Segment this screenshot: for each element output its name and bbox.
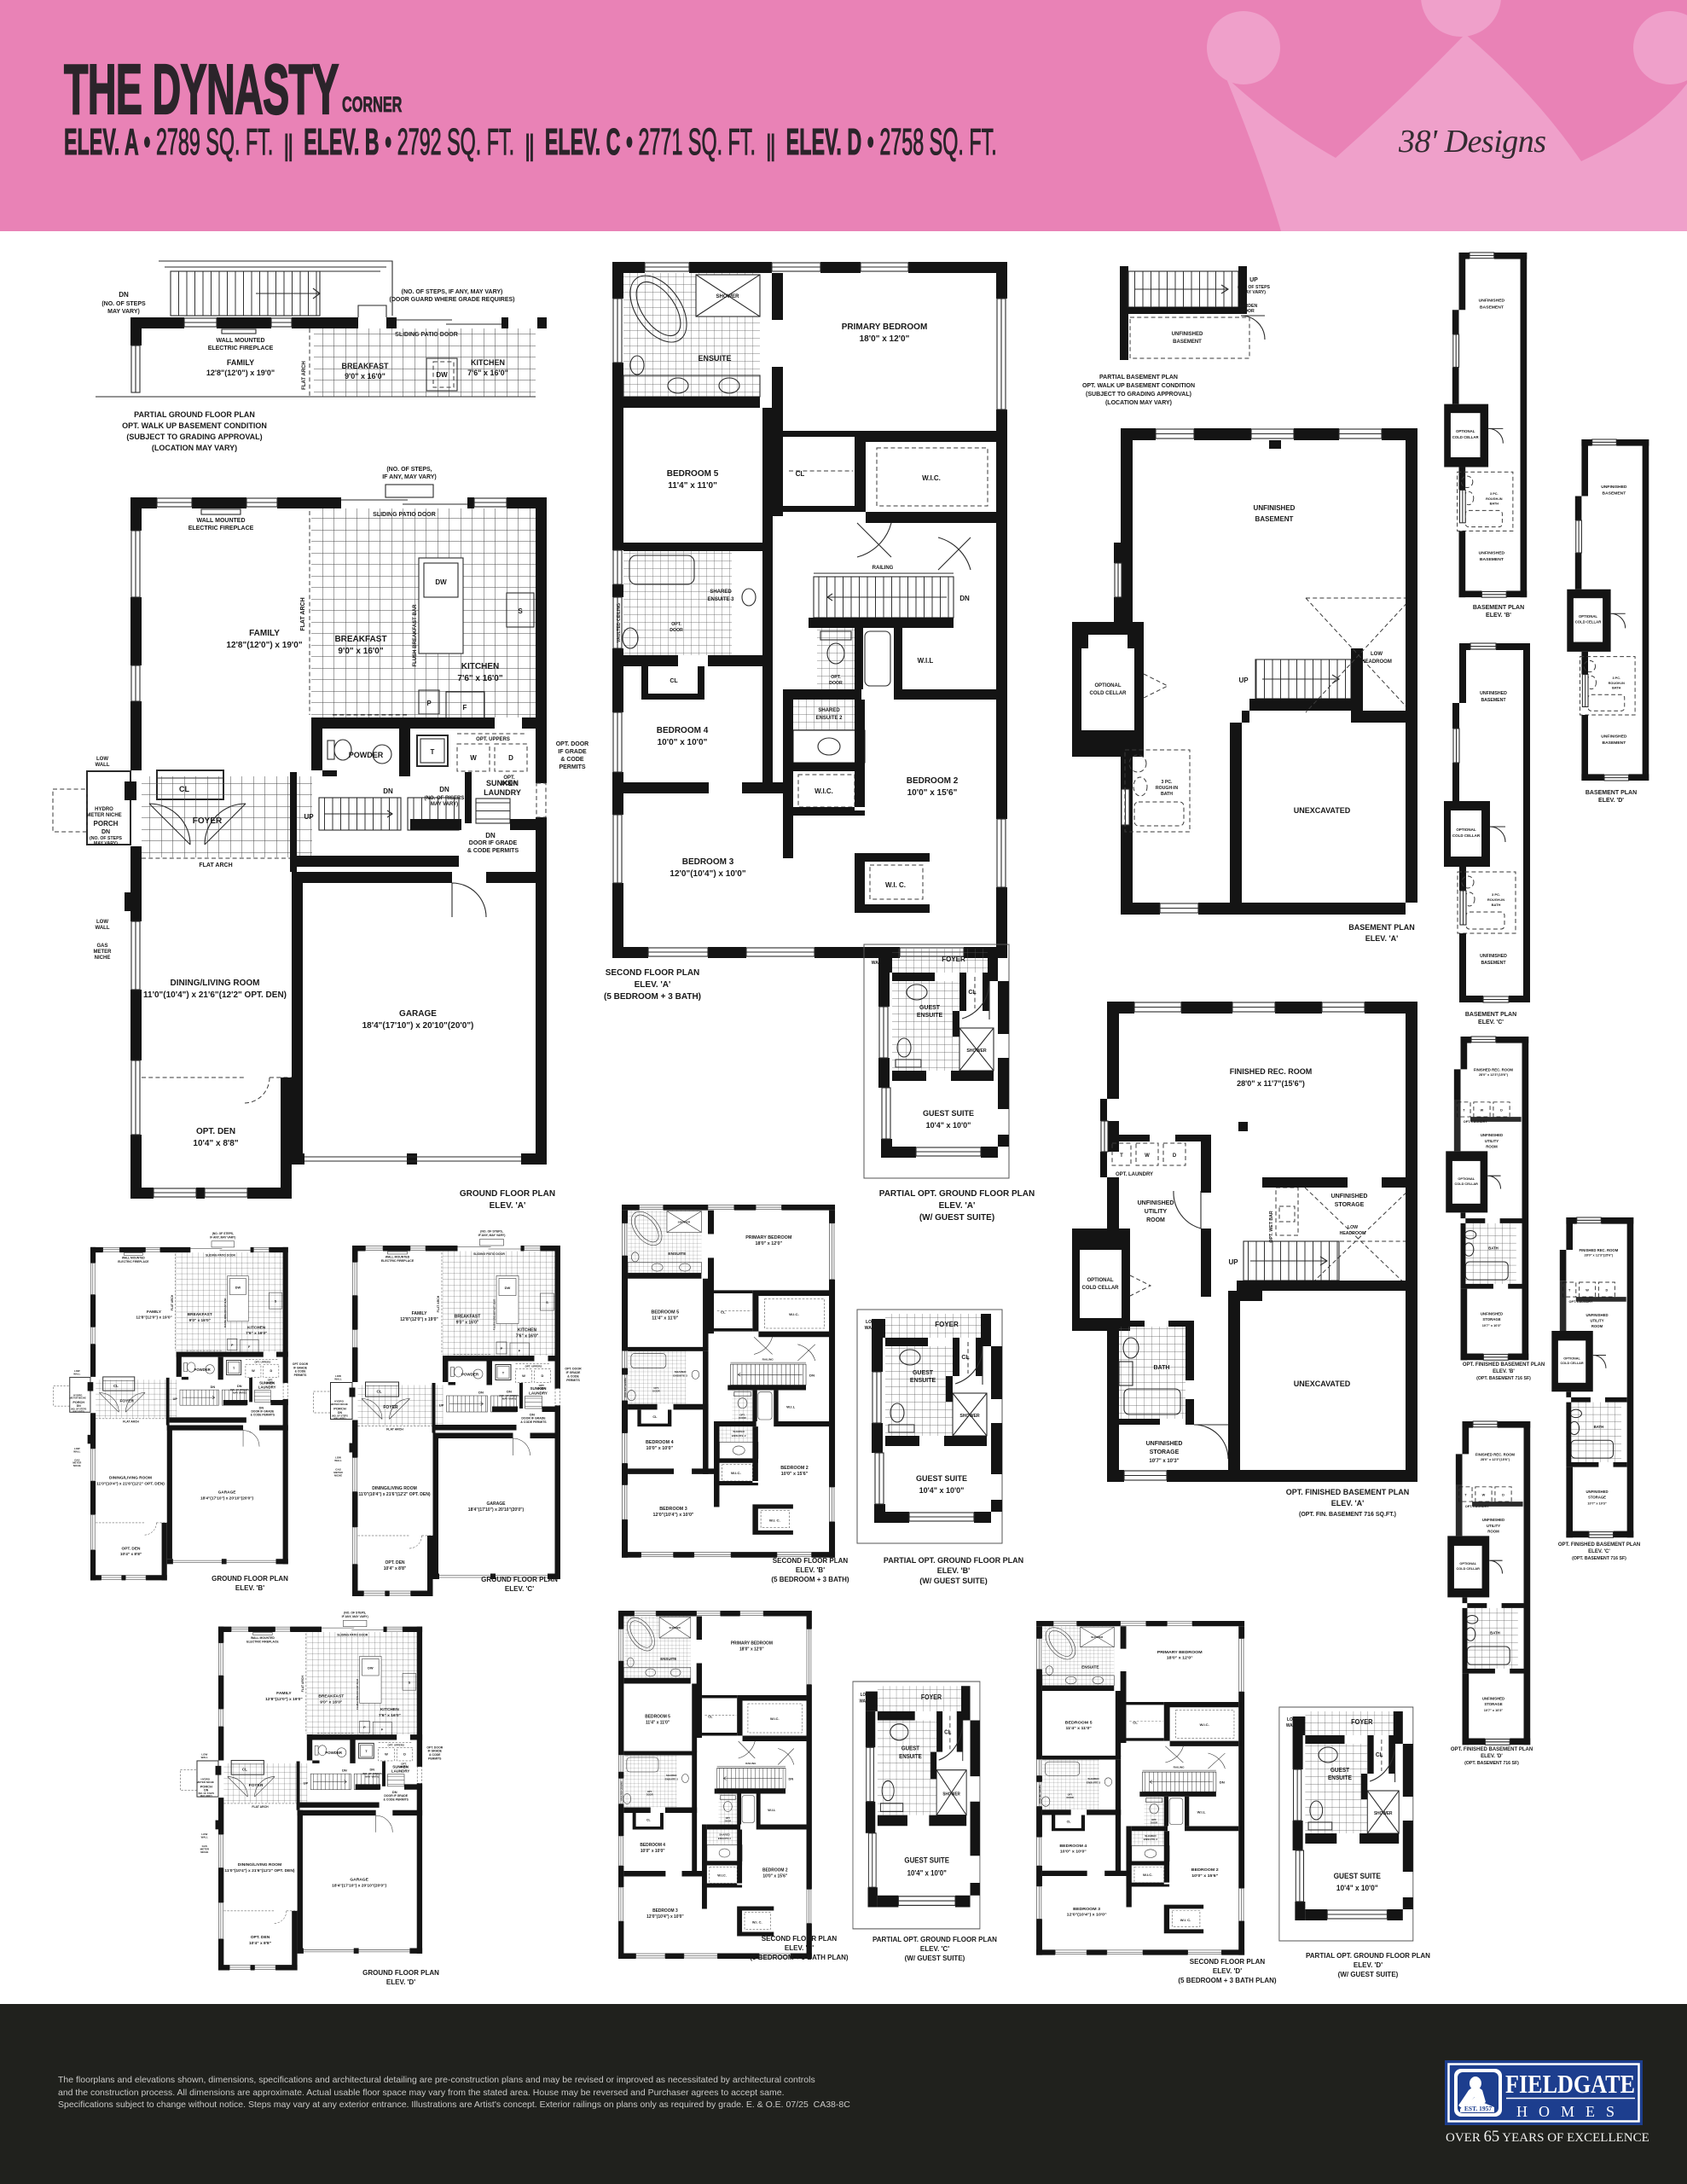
- svg-text:(OPT. BASEMENT 716 SF): (OPT. BASEMENT 716 SF): [1572, 1556, 1626, 1561]
- svg-text:BASEMENT PLAN: BASEMENT PLAN: [1465, 1012, 1516, 1018]
- svg-text:PARTIAL BASEMENT PLAN: PARTIAL BASEMENT PLAN: [1099, 375, 1178, 380]
- svg-text:SECOND FLOOR PLAN: SECOND FLOOR PLAN: [773, 1557, 849, 1565]
- svg-text:ELEV. 'A': ELEV. 'A': [490, 1201, 526, 1211]
- svg-text:PARTIAL OPT. GROUND FLOOR PLAN: PARTIAL OPT. GROUND FLOOR PLAN: [872, 1936, 997, 1943]
- svg-text:ELEV. 'D': ELEV. 'D': [1213, 1967, 1242, 1975]
- svg-text:(W/ GUEST SUITE): (W/ GUEST SUITE): [905, 1955, 965, 1962]
- svg-text:COLD CELLAR: COLD CELLAR: [1090, 691, 1128, 696]
- svg-text:WALL MOUNTED: WALL MOUNTED: [216, 338, 264, 344]
- svg-text:ELEV. 'D': ELEV. 'D': [1598, 798, 1624, 804]
- svg-text:ELEV. 'C': ELEV. 'C': [785, 1944, 814, 1952]
- svg-text:HOMES: HOMES: [1516, 2103, 1626, 2120]
- svg-text:(NO. OF STEPS, IF ANY, MAY VAR: (NO. OF STEPS, IF ANY, MAY VARY): [402, 289, 503, 295]
- svg-text:W: W: [1145, 1153, 1150, 1159]
- svg-text:(5 BEDROOM + 3 BATH): (5 BEDROOM + 3 BATH): [604, 992, 701, 1002]
- svg-text:LOW: LOW: [1371, 652, 1383, 657]
- svg-text:ELEV. 'B': ELEV. 'B': [235, 1584, 264, 1592]
- svg-text:(NO. OF STEPS: (NO. OF STEPS: [101, 301, 146, 307]
- svg-text:ELEV. 'B': ELEV. 'B': [1493, 1369, 1515, 1374]
- svg-text:ELEV. 'C': ELEV. 'C': [1588, 1549, 1610, 1554]
- svg-text:(SUBJECT TO GRADING APPROVAL): (SUBJECT TO GRADING APPROVAL): [126, 433, 262, 441]
- svg-text:COLD CELLAR: COLD CELLAR: [1082, 1286, 1120, 1291]
- svg-text:(OPT. BASEMENT 716 SF): (OPT. BASEMENT 716 SF): [1464, 1761, 1519, 1766]
- svg-text:(LOCATION MAY VARY): (LOCATION MAY VARY): [1105, 400, 1172, 406]
- svg-text:SECOND FLOOR PLAN: SECOND FLOOR PLAN: [1190, 1958, 1266, 1966]
- svg-text:ELEV. 'B': ELEV. 'B': [1486, 613, 1511, 619]
- svg-text:EST. 1957: EST. 1957: [1464, 2105, 1493, 2112]
- svg-text:(W/ GUEST SUITE): (W/ GUEST SUITE): [919, 1213, 994, 1223]
- svg-text:UNFINISHED: UNFINISHED: [1331, 1194, 1368, 1199]
- svg-text:7'6" x 16'0": 7'6" x 16'0": [467, 369, 508, 377]
- svg-text:UNFINISHED: UNFINISHED: [1138, 1200, 1174, 1206]
- svg-text:FLAT ARCH: FLAT ARCH: [302, 361, 307, 390]
- svg-text:BATH: BATH: [1161, 792, 1173, 797]
- svg-text:ELEV. 'B': ELEV. 'B': [796, 1566, 825, 1574]
- svg-text:(5 BEDROOM + 3 BATH PLAN): (5 BEDROOM + 3 BATH PLAN): [1178, 1977, 1277, 1984]
- svg-text:PARTIAL GROUND FLOOR PLAN: PARTIAL GROUND FLOOR PLAN: [134, 410, 255, 419]
- svg-text:OPT. FINISHED BASEMENT PLAN: OPT. FINISHED BASEMENT PLAN: [1286, 1488, 1410, 1496]
- svg-text:(5 BEDROOM + 3 BATH PLAN): (5 BEDROOM + 3 BATH PLAN): [750, 1954, 849, 1961]
- svg-text:BASEMENT PLAN: BASEMENT PLAN: [1586, 790, 1637, 796]
- svg-text:ELEV. 'B': ELEV. 'B': [937, 1566, 970, 1575]
- svg-text:DOOR: DOOR: [1241, 309, 1255, 314]
- svg-text:ELEV. 'A': ELEV. 'A': [1331, 1499, 1364, 1507]
- svg-text:UP: UP: [1249, 277, 1258, 283]
- svg-text:LOW: LOW: [1348, 1225, 1358, 1230]
- svg-text:MAY VARY): MAY VARY): [107, 309, 140, 315]
- svg-text:STORAGE: STORAGE: [1335, 1202, 1365, 1208]
- svg-text:(OPT. FIN. BASEMENT 716 SQ.FT.: (OPT. FIN. BASEMENT 716 SQ.FT.): [1299, 1512, 1396, 1518]
- svg-text:FINISHED REC. ROOM: FINISHED REC. ROOM: [1230, 1067, 1313, 1076]
- svg-text:(5 BEDROOM + 3 BATH): (5 BEDROOM + 3 BATH): [771, 1576, 849, 1583]
- svg-text:(W/ GUEST SUITE): (W/ GUEST SUITE): [919, 1577, 988, 1585]
- svg-text:DN: DN: [119, 291, 129, 299]
- svg-text:PARTIAL OPT. GROUND FLOOR PLAN: PARTIAL OPT. GROUND FLOOR PLAN: [884, 1556, 1023, 1565]
- svg-text:T: T: [1120, 1153, 1123, 1159]
- svg-text:PARTIAL OPT. GROUND FLOOR PLAN: PARTIAL OPT. GROUND FLOOR PLAN: [1306, 1952, 1430, 1960]
- svg-text:ELEV. 'D': ELEV. 'D': [1481, 1754, 1503, 1759]
- svg-text:UNFINISHED: UNFINISHED: [1254, 504, 1296, 512]
- svg-text:ELEV. 'A': ELEV. 'A': [1365, 934, 1398, 943]
- svg-text:PARTIAL OPT. GROUND FLOOR PLAN: PARTIAL OPT. GROUND FLOOR PLAN: [879, 1189, 1035, 1199]
- svg-text:(SUBJECT TO GRADING APPROVAL): (SUBJECT TO GRADING APPROVAL): [1086, 392, 1191, 398]
- svg-text:(LOCATION MAY VARY): (LOCATION MAY VARY): [152, 444, 237, 452]
- svg-text:ELEV. 'C': ELEV. 'C': [505, 1585, 534, 1593]
- svg-text:UNFINISHED: UNFINISHED: [1172, 332, 1203, 337]
- svg-text:BASEMENT PLAN: BASEMENT PLAN: [1348, 923, 1415, 932]
- svg-text:OPT. WALK UP BASEMENT CONDITIO: OPT. WALK UP BASEMENT CONDITION: [122, 421, 267, 430]
- svg-text:OPTIONAL: OPTIONAL: [1087, 1278, 1114, 1283]
- svg-text:GROUND FLOOR PLAN: GROUND FLOOR PLAN: [212, 1575, 288, 1583]
- svg-text:KITCHEN: KITCHEN: [471, 358, 505, 367]
- svg-text:DW: DW: [436, 371, 448, 379]
- svg-text:FIELDGATE: FIELDGATE: [1505, 2069, 1635, 2099]
- svg-text:HEADROOM: HEADROOM: [1361, 659, 1392, 665]
- svg-text:OPT. FINISHED BASEMENT PLAN: OPT. FINISHED BASEMENT PLAN: [1451, 1747, 1533, 1752]
- svg-text:ELECTRIC FIREPLACE: ELECTRIC FIREPLACE: [208, 346, 274, 351]
- svg-text:(DOOR GUARD WHERE GRADE REQUIR: (DOOR GUARD WHERE GRADE REQUIRES): [389, 297, 514, 303]
- svg-text:OPT. WALK UP BASEMENT CONDITIO: OPT. WALK UP BASEMENT CONDITION: [1082, 383, 1195, 389]
- svg-text:OPT. FINISHED BASEMENT PLAN: OPT. FINISHED BASEMENT PLAN: [1558, 1542, 1640, 1548]
- svg-text:ELEV. 'D': ELEV. 'D': [1354, 1961, 1383, 1969]
- svg-text:OPT. FINISHED BASEMENT PLAN: OPT. FINISHED BASEMENT PLAN: [1463, 1362, 1545, 1368]
- svg-text:ELEV. 'C': ELEV. 'C': [920, 1945, 949, 1953]
- svg-text:10'7" x 10'3": 10'7" x 10'3": [1149, 1459, 1179, 1464]
- svg-text:(OPT. BASEMENT 716 SF): (OPT. BASEMENT 716 SF): [1476, 1376, 1531, 1381]
- svg-text:FAMILY: FAMILY: [227, 358, 254, 367]
- svg-text:ROUGH-IN: ROUGH-IN: [1156, 786, 1178, 791]
- svg-text:9'0" x 16'0": 9'0" x 16'0": [345, 372, 386, 380]
- svg-text:ELEV. 'C': ELEV. 'C': [1478, 1019, 1504, 1025]
- svg-text:12'8"(12'0") x 19'0": 12'8"(12'0") x 19'0": [206, 369, 275, 377]
- svg-text:UNEXCAVATED: UNEXCAVATED: [1294, 806, 1351, 815]
- svg-text:GROUND FLOOR PLAN: GROUND FLOOR PLAN: [362, 1969, 439, 1977]
- svg-text:ELEV. 'A': ELEV. 'A': [635, 980, 671, 990]
- svg-text:OPT. WET BAR: OPT. WET BAR: [1269, 1211, 1274, 1242]
- svg-text:UP: UP: [1228, 1258, 1238, 1266]
- svg-text:OPT. LAUNDRY: OPT. LAUNDRY: [1116, 1172, 1153, 1177]
- svg-text:BASEMENT PLAN: BASEMENT PLAN: [1473, 605, 1524, 611]
- svg-text:GROUND FLOOR PLAN: GROUND FLOOR PLAN: [460, 1189, 555, 1199]
- svg-text:GROUND FLOOR PLAN: GROUND FLOOR PLAN: [481, 1576, 558, 1583]
- svg-text:(W/ GUEST SUITE): (W/ GUEST SUITE): [1338, 1971, 1399, 1978]
- svg-text:ELEV. 'A': ELEV. 'A': [939, 1201, 976, 1211]
- svg-text:ELEV. 'D': ELEV. 'D': [386, 1978, 415, 1986]
- svg-text:28'0" x 11'7"(15'6"): 28'0" x 11'7"(15'6"): [1237, 1079, 1305, 1088]
- svg-text:SECOND FLOOR PLAN: SECOND FLOOR PLAN: [606, 968, 700, 978]
- svg-text:OPTIONAL: OPTIONAL: [1095, 683, 1122, 688]
- svg-text:UNEXCAVATED: UNEXCAVATED: [1294, 1380, 1351, 1388]
- svg-text:STORAGE: STORAGE: [1150, 1449, 1180, 1455]
- svg-text:3 PC.: 3 PC.: [1162, 780, 1174, 785]
- svg-text:BATH: BATH: [1154, 1365, 1170, 1371]
- svg-text:UP: UP: [1238, 677, 1249, 684]
- svg-text:BASEMENT: BASEMENT: [1255, 515, 1294, 523]
- svg-text:UNFINISHED: UNFINISHED: [1146, 1441, 1183, 1447]
- svg-text:UTILITY: UTILITY: [1145, 1209, 1168, 1215]
- svg-text:D: D: [1173, 1153, 1177, 1159]
- svg-text:SECOND FLOOR PLAN: SECOND FLOOR PLAN: [762, 1935, 838, 1943]
- svg-text:BASEMENT: BASEMENT: [1173, 340, 1202, 345]
- svg-text:BREAKFAST: BREAKFAST: [341, 362, 389, 370]
- svg-text:ROOM: ROOM: [1146, 1217, 1165, 1223]
